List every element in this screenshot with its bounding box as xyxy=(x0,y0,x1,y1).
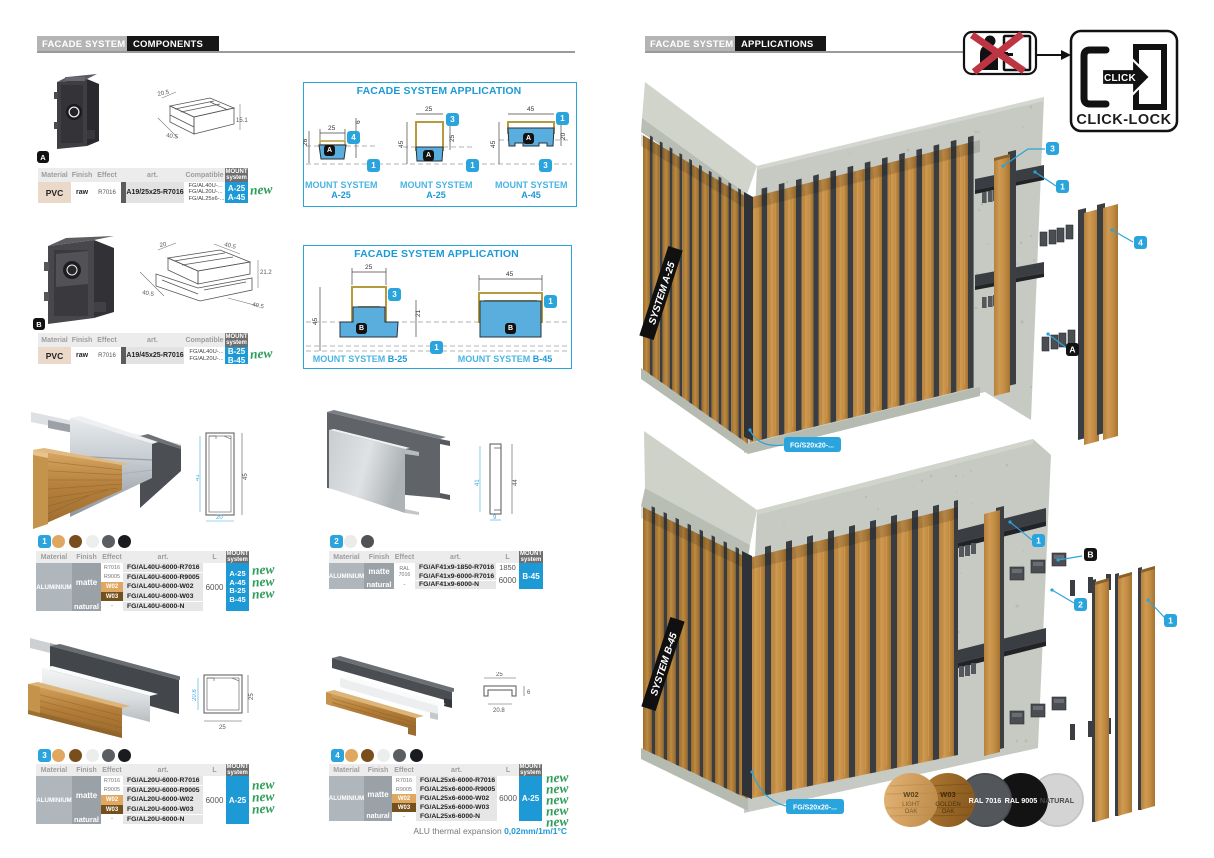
svg-text:25: 25 xyxy=(249,693,254,700)
svg-text:25: 25 xyxy=(219,725,226,731)
svg-text:CLICK-LOCK: CLICK-LOCK xyxy=(1076,112,1171,128)
svg-text:A: A xyxy=(1069,345,1075,355)
svg-text:NATURAL: NATURAL xyxy=(1040,796,1075,805)
svg-text:44: 44 xyxy=(513,479,519,486)
svg-text:15.1: 15.1 xyxy=(236,118,248,124)
svg-text:OAK: OAK xyxy=(905,809,918,815)
svg-text:1: 1 xyxy=(1168,616,1173,626)
svg-text:40.5: 40.5 xyxy=(142,290,155,298)
svg-text:40.5: 40.5 xyxy=(224,242,237,251)
svg-text:RAL 9005: RAL 9005 xyxy=(1005,796,1038,805)
svg-text:45: 45 xyxy=(398,140,405,148)
svg-text:25: 25 xyxy=(449,134,456,142)
svg-text:20: 20 xyxy=(159,242,167,249)
svg-text:21.2: 21.2 xyxy=(260,270,272,276)
svg-text:CLICK: CLICK xyxy=(1104,73,1137,84)
svg-text:RAL 7016: RAL 7016 xyxy=(969,796,1002,805)
svg-text:20.8: 20.8 xyxy=(192,689,198,701)
svg-text:45: 45 xyxy=(312,317,319,325)
svg-text:45: 45 xyxy=(490,140,497,148)
svg-text:41: 41 xyxy=(475,479,481,486)
svg-text:40.5: 40.5 xyxy=(166,133,179,141)
svg-text:21: 21 xyxy=(415,309,422,317)
svg-text:20.5: 20.5 xyxy=(157,90,170,98)
svg-text:6: 6 xyxy=(527,690,531,696)
svg-text:2: 2 xyxy=(1078,600,1083,610)
svg-text:20.8: 20.8 xyxy=(493,708,505,714)
svg-text:26: 26 xyxy=(303,138,309,146)
svg-text:LIGHT: LIGHT xyxy=(902,802,920,808)
svg-text:25: 25 xyxy=(425,106,433,113)
svg-text:1: 1 xyxy=(1036,536,1041,546)
svg-text:20: 20 xyxy=(560,132,567,140)
svg-text:40.5: 40.5 xyxy=(252,302,265,310)
svg-text:45: 45 xyxy=(506,271,514,278)
svg-text:FG/S20x20-...: FG/S20x20-... xyxy=(790,443,834,450)
svg-text:25: 25 xyxy=(328,125,336,132)
svg-text:1: 1 xyxy=(1060,182,1065,192)
svg-text:6: 6 xyxy=(355,120,362,124)
svg-text:41: 41 xyxy=(196,474,201,481)
svg-text:B: B xyxy=(1087,550,1093,560)
svg-text:45: 45 xyxy=(527,106,535,113)
svg-text:OAK: OAK xyxy=(942,809,955,815)
svg-text:25: 25 xyxy=(496,672,503,678)
svg-text:20: 20 xyxy=(216,515,223,521)
svg-text:3: 3 xyxy=(1050,144,1055,154)
svg-text:25: 25 xyxy=(365,264,373,271)
svg-text:4: 4 xyxy=(1138,238,1143,248)
svg-text:FG/S20x20-...: FG/S20x20-... xyxy=(793,805,837,812)
svg-text:W03: W03 xyxy=(940,790,955,799)
svg-text:W02: W02 xyxy=(903,790,918,799)
svg-text:GOLDEN: GOLDEN xyxy=(935,802,960,808)
svg-text:45: 45 xyxy=(243,473,249,480)
